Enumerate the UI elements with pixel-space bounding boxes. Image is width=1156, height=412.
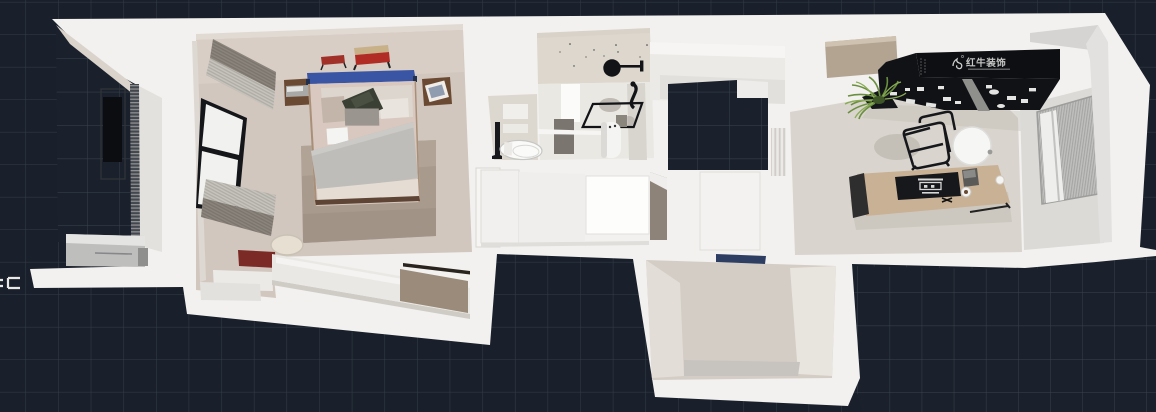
svg-text:红牛装饰: 红牛装饰 — [966, 57, 1006, 69]
